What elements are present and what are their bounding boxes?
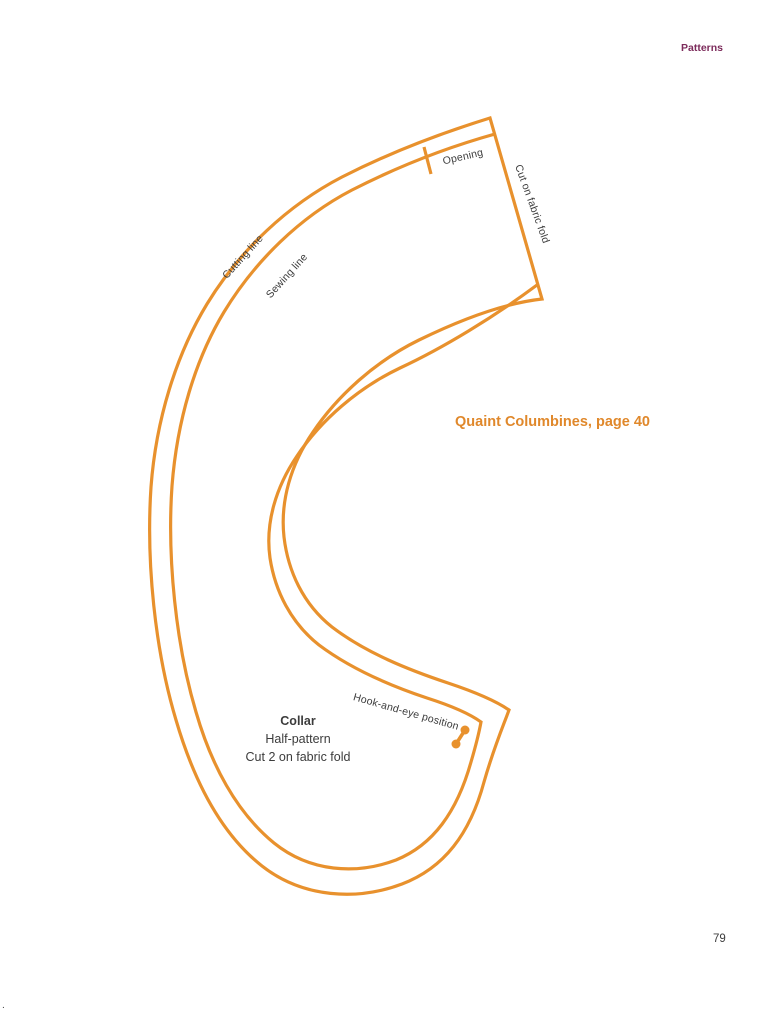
pattern-info-block: Collar Half-pattern Cut 2 on fabric fold [198,712,398,766]
opening-tick [424,147,431,174]
collar-pattern-diagram [0,0,772,1015]
pattern-info-line: Cut 2 on fabric fold [198,748,398,766]
corner-mark: . [2,1000,5,1011]
pattern-caption: Quaint Columbines, page 40 [455,414,640,430]
pattern-info-line: Half-pattern [198,730,398,748]
page-number: 79 [713,933,726,945]
cutting-line-path [150,118,542,894]
pattern-name: Collar [198,712,398,730]
book-page: Patterns Cutting line Sewing line Openin… [0,0,772,1015]
